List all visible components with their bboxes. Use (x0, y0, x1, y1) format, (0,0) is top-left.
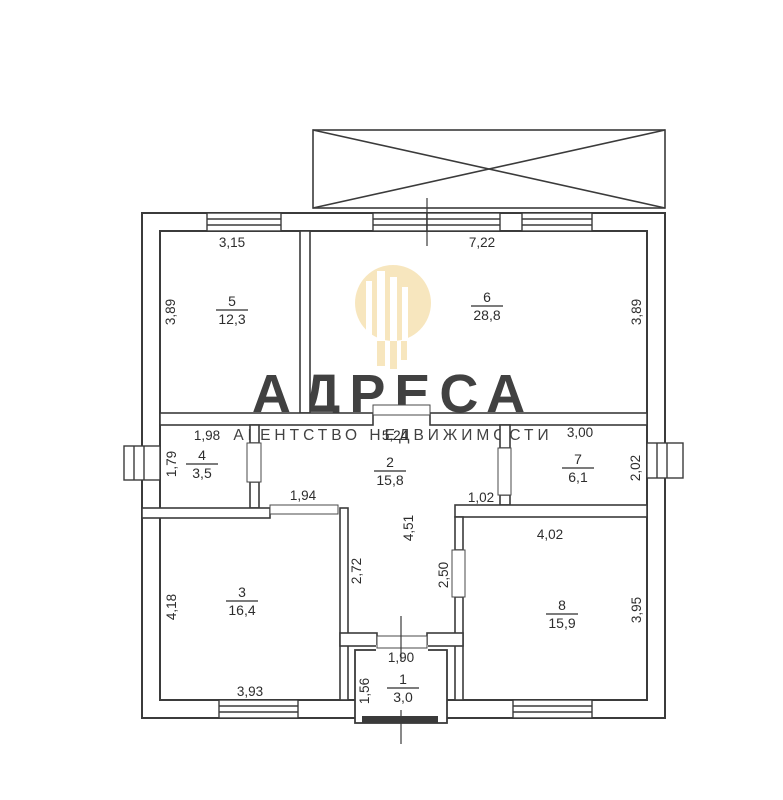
room-5-label: 5 12,3 (216, 293, 248, 327)
room-1-number: 1 (399, 671, 407, 687)
room-2-number: 2 (386, 454, 394, 470)
dim-hall-door3: 1,94 (290, 488, 317, 503)
room-5-area: 12,3 (218, 311, 245, 327)
dim-top-room7: 3,00 (567, 425, 593, 440)
dim-right-room8: 3,95 (629, 597, 644, 623)
terrace-outline (313, 130, 665, 208)
window-room4-left (124, 446, 160, 480)
window-room8-bottom (513, 700, 592, 718)
agency-logo-icon (355, 265, 431, 369)
dim-corridor-left: 2,72 (349, 558, 364, 584)
room-4-label: 4 3,5 (186, 447, 218, 481)
room-8-label: 8 15,9 (546, 597, 578, 631)
floor-plan-page: АДРЕСА АГЕНТСТВО НЕДВИЖИМОСТИ (0, 0, 783, 800)
dim-top-room4: 1,98 (194, 428, 220, 443)
dim-hall-depth: 4,51 (401, 515, 416, 541)
room-4-number: 4 (198, 447, 206, 463)
window-room7-right (647, 443, 683, 478)
dim-top-hall: 5,24 (382, 428, 409, 443)
room-8-number: 8 (558, 597, 566, 613)
room-3-number: 3 (238, 584, 246, 600)
window-room6-far-right (522, 213, 592, 231)
dim-left-room1: 1,56 (357, 678, 372, 704)
dim-right-room7: 2,02 (628, 455, 643, 481)
room-7-number: 7 (574, 451, 582, 467)
floor-plan-image: АДРЕСА АГЕНТСТВО НЕДВИЖИМОСТИ (0, 0, 783, 800)
dim-left-room3: 4,18 (164, 594, 179, 620)
room-6-area: 28,8 (473, 307, 500, 323)
dim-left-room5: 3,89 (163, 299, 178, 325)
room-1-area: 3,0 (393, 689, 413, 705)
window-room6-top-left (373, 213, 427, 231)
dim-top-room6: 7,22 (469, 235, 495, 250)
dim-right-room6: 3,89 (629, 299, 644, 325)
dim-left-room4: 1,79 (164, 451, 179, 477)
entrance-threshold (362, 716, 438, 723)
room-3-area: 16,4 (228, 602, 255, 618)
room-6-number: 6 (483, 289, 491, 305)
dim-corridor-right: 2,50 (436, 562, 451, 588)
dim-top-room5: 3,15 (219, 235, 245, 250)
room-8-area: 15,9 (548, 615, 575, 631)
room-3-label: 3 16,4 (226, 584, 258, 618)
window-room5-top (207, 213, 281, 231)
room-2-area: 15,8 (376, 472, 403, 488)
dim-top-room8: 4,02 (537, 527, 563, 542)
room-6-label: 6 28,8 (471, 289, 503, 323)
window-room3-bottom (219, 700, 298, 718)
room-4-area: 3,5 (192, 465, 212, 481)
room-5-number: 5 (228, 293, 236, 309)
room-2-label: 2 15,8 (374, 454, 406, 488)
dim-hall-step8: 1,02 (468, 490, 494, 505)
window-room6-top-right (427, 213, 500, 231)
dim-top-room1: 1,90 (388, 650, 414, 665)
dim-bottom-room3: 3,93 (237, 684, 263, 699)
room-7-area: 6,1 (568, 469, 588, 485)
room-7-label: 7 6,1 (562, 451, 594, 485)
